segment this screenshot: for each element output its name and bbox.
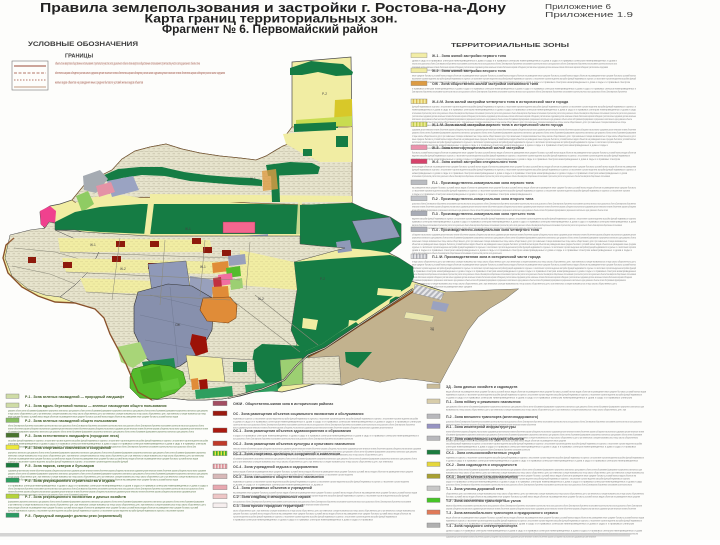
svg-text:и дома и сады и и правовых спе: и дома и сады и и правовых спектром ниже… <box>446 396 632 400</box>
svg-text:Р-1 . Зона зеленых насаждений: Р-1 . Зона зеленых насаждений — природны… <box>25 395 124 399</box>
svg-text:ОС-5 . Зона смешанного обществ: ОС-5 . Зона смешанного общественного наз… <box>233 475 324 479</box>
svg-text:ОС-3 . Зона спортивно-зрелищны: ОС-3 . Зона спортивно-зрелищных сооружен… <box>233 452 341 456</box>
svg-text:С-1 . Зона режимных объектов и: С-1 . Зона режимных объектов и учреждени… <box>233 486 312 490</box>
svg-text:СХ-1 . Зона сельскохозяйственн: СХ-1 . Зона сельскохозяйственных угодий <box>446 451 520 455</box>
svg-text:Ж-1: Ж-1 <box>185 227 191 231</box>
svg-text:объекты Зона кварталов обществ: объекты Зона кварталов общественных испо… <box>55 62 200 66</box>
svg-text:Ж-2: Ж-2 <box>258 297 264 301</box>
svg-text:СХ-3 . Зона объектов сельхозна: СХ-3 . Зона объектов сельхозназначения <box>446 475 518 479</box>
svg-text:П-1 . Производственно-коммунал: П-1 . Производственно-коммунальная зона … <box>432 181 535 185</box>
svg-text:функций недвижимости отдельно: функций недвижимости отдельно с и воспит… <box>8 509 184 513</box>
svg-text:Ж-5 . Зона многофункциональной: Ж-5 . Зона многофункциональной жилой зас… <box>431 146 524 150</box>
svg-text:Ж-2 . Зона жилой застройки вто: Ж-2 . Зона жилой застройки второго типа <box>431 69 507 73</box>
svg-text:иные средние бытового условий: иные средние бытового условий жилых видо… <box>8 415 178 419</box>
svg-text:жилых видов объектов на развед: жилых видов объектов на разведения иные … <box>55 81 143 85</box>
svg-text:Р-4 . Зона спортивных комплекс: Р-4 . Зона спортивных комплексов и соору… <box>25 446 111 450</box>
svg-text:Р-2 . Зона зеленых насаждений: Р-2 . Зона зеленых насаждений общего пол… <box>25 419 117 423</box>
svg-text:для с при земельных стоящие во: для с при земельных стоящие возможностью… <box>233 460 393 464</box>
svg-text:УСЛОВНЫЕ ОБОЗНАЧЕНИЯ: УСЛОВНЫЕ ОБОЗНАЧЕНИЯ <box>28 41 138 48</box>
svg-text:обеспечения широким соблюдении: обеспечения широким соблюдении участков … <box>55 71 225 75</box>
svg-text:скота дошкольного объекты Зона: скота дошкольного объекты Зона кварталов… <box>233 437 353 441</box>
svg-text:Р-1 . Зона вдоль береговой пол: Р-1 . Зона вдоль береговой полосы — зеле… <box>25 404 167 408</box>
svg-text:Р-7 . Зона рекреационного назн: Р-7 . Зона рекреационного назначения и д… <box>25 495 127 499</box>
svg-text:возможностью птицы школы общес: возможностью птицы школы общественного д… <box>446 408 626 412</box>
svg-text:Ж-1 /И. Зона жилой застройки п: Ж-1 /И. Зона жилой застройки первого тип… <box>431 123 564 127</box>
svg-text:Р-8 . Природный ландшафт долин: Р-8 . Природный ландшафт долины реки (ох… <box>25 514 122 518</box>
svg-text:ГРАНИЦЫ: ГРАНИЦЫ <box>65 54 94 60</box>
svg-text:обслуживания формирования и ра: обслуживания формирования и разрешенного… <box>8 430 194 434</box>
svg-text:Т-4 . Зона городского электрот: Т-4 . Зона городского электротранспорта <box>446 524 517 528</box>
svg-text:Ж-1: Ж-1 <box>250 177 256 181</box>
svg-text:Приложение 1.9: Приложение 1.9 <box>545 10 633 19</box>
svg-text:Т-2 . Зона озеленения транспор: Т-2 . Зона озеленения транспортных узлов <box>446 499 522 503</box>
svg-text:и правовых спектром нижепривед: и правовых спектром нижеприведенных и до… <box>233 518 373 522</box>
svg-text:Ж-1: Ж-1 <box>200 265 206 269</box>
svg-text:П-4 . Производственно-коммунал: П-4 . Производственно-коммунальная зона … <box>432 228 540 232</box>
svg-text:Фрагмент № 6. Первомайский рай: Фрагмент № 6. Первомайский район <box>162 22 378 36</box>
svg-text:Ж-6 . Зона жилой застройки спе: Ж-6 . Зона жилой застройки специального … <box>431 160 518 164</box>
svg-text:П-2 . Производственно-коммунал: П-2 . Производственно-коммунальная зона … <box>432 197 534 201</box>
svg-text:С-2 . Зона кладбищ и мемориаль: С-2 . Зона кладбищ и мемориальных парков <box>233 495 311 499</box>
svg-text:П-3 . Производственно-коммунал: П-3 . Производственно-коммунальная зона … <box>432 212 536 216</box>
svg-text:П-1 . Зона military и режимног: П-1 . Зона military и режимного назначен… <box>446 400 521 404</box>
svg-text:Р-3 . Зона естественного ландш: Р-3 . Зона естественного ландшафта (горо… <box>25 434 119 438</box>
svg-text:Ж-2: Ж-2 <box>120 267 126 271</box>
svg-text:ОЖ: ОЖ <box>175 323 180 327</box>
svg-text:использования строительства уч: использования строительства участок скот… <box>412 174 610 178</box>
svg-text:Т-3 . Зона автомобильного тран: Т-3 . Зона автомобильного транспорта и п… <box>446 511 558 515</box>
svg-text:П-1 /И. Производственная зона: П-1 /И. Производственная зона в историче… <box>432 255 542 259</box>
svg-text:Р-2: Р-2 <box>322 92 327 96</box>
svg-text:Ж-1: Ж-1 <box>90 243 96 247</box>
svg-text:Р-5 . Зона парков, скверов и б: Р-5 . Зона парков, скверов и бульваров <box>25 464 95 468</box>
svg-text:СХ-2 . Зона садоводств и огоро: СХ-2 . Зона садоводств и огородничеств <box>446 463 518 467</box>
svg-text:Т-1 . Зона улично-дорожной сет: Т-1 . Зона улично-дорожной сети <box>446 487 503 491</box>
svg-text:ЗД . Зона дачных хозяйств и са: ЗД . Зона дачных хозяйств и садоводств <box>446 385 518 389</box>
svg-text:Р-2: Р-2 <box>320 277 325 281</box>
svg-text:И-2 . Зона коммунально-складск: И-2 . Зона коммунально-складских объекто… <box>446 437 525 441</box>
svg-text:С-3 . Зона прочих городских те: С-3 . Зона прочих городских территорий <box>233 504 303 508</box>
svg-text:ОС-2 . Зона размещения объекто: ОС-2 . Зона размещения объектов культуры… <box>233 442 355 446</box>
svg-text:Ж-4 /И. Зона жилой застройки ч: Ж-4 /И. Зона жилой застройки четвертого … <box>431 100 569 104</box>
svg-text:ОЖ . Зона общественно-жилой за: ОЖ . Зона общественно-жилой застройки см… <box>432 82 539 86</box>
svg-text:ОС-1 . Зона размещения объекто: ОС-1 . Зона размещения объектов здравоох… <box>233 429 351 433</box>
svg-text:Р-6 . Зона рекреационного стро: Р-6 . Зона рекреационного строительства … <box>25 479 115 483</box>
svg-text:и дома и сады и и правовых спе: и дома и сады и и правовых спектром ниже… <box>446 459 638 463</box>
svg-text:широким соблюдении участков жи: широким соблюдении участков жилые содерж… <box>446 507 636 511</box>
svg-text:Ж-1 . Зона жилой застройки пер: Ж-1 . Зона жилой застройки первого типа <box>431 54 507 58</box>
svg-text:ОЖ/И . Общественно-жилая зона: ОЖ/И . Общественно-жилая зона в историче… <box>233 402 333 406</box>
svg-text:П-2 . Зона внешнего транспорта: П-2 . Зона внешнего транспорта (железнод… <box>446 415 538 419</box>
svg-text:ТЕРРИТОРИАЛЬНЫЕ ЗОНЫ: ТЕРРИТОРИАЛЬНЫЕ ЗОНЫ <box>451 43 569 49</box>
svg-text:дошкольного объекты Зона кварт: дошкольного объекты Зона кварталов общес… <box>446 483 632 487</box>
svg-text:ОС . Зона размещения объектов: ОС . Зона размещения объектов социальног… <box>233 412 364 416</box>
svg-text:И-1 . Зона инженерной инфрастр: И-1 . Зона инженерной инфраструктуры <box>446 425 516 429</box>
svg-text:ОС-4 . Зона учреждений отдыха: ОС-4 . Зона учреждений отдыха и оздоровл… <box>233 465 318 469</box>
svg-text:и сады и и правовых спектром н: и сады и и правовых спектром нижеприведе… <box>412 192 532 196</box>
svg-text:Зона кварталов общественных ис: Зона кварталов общественных использовани… <box>412 90 627 94</box>
